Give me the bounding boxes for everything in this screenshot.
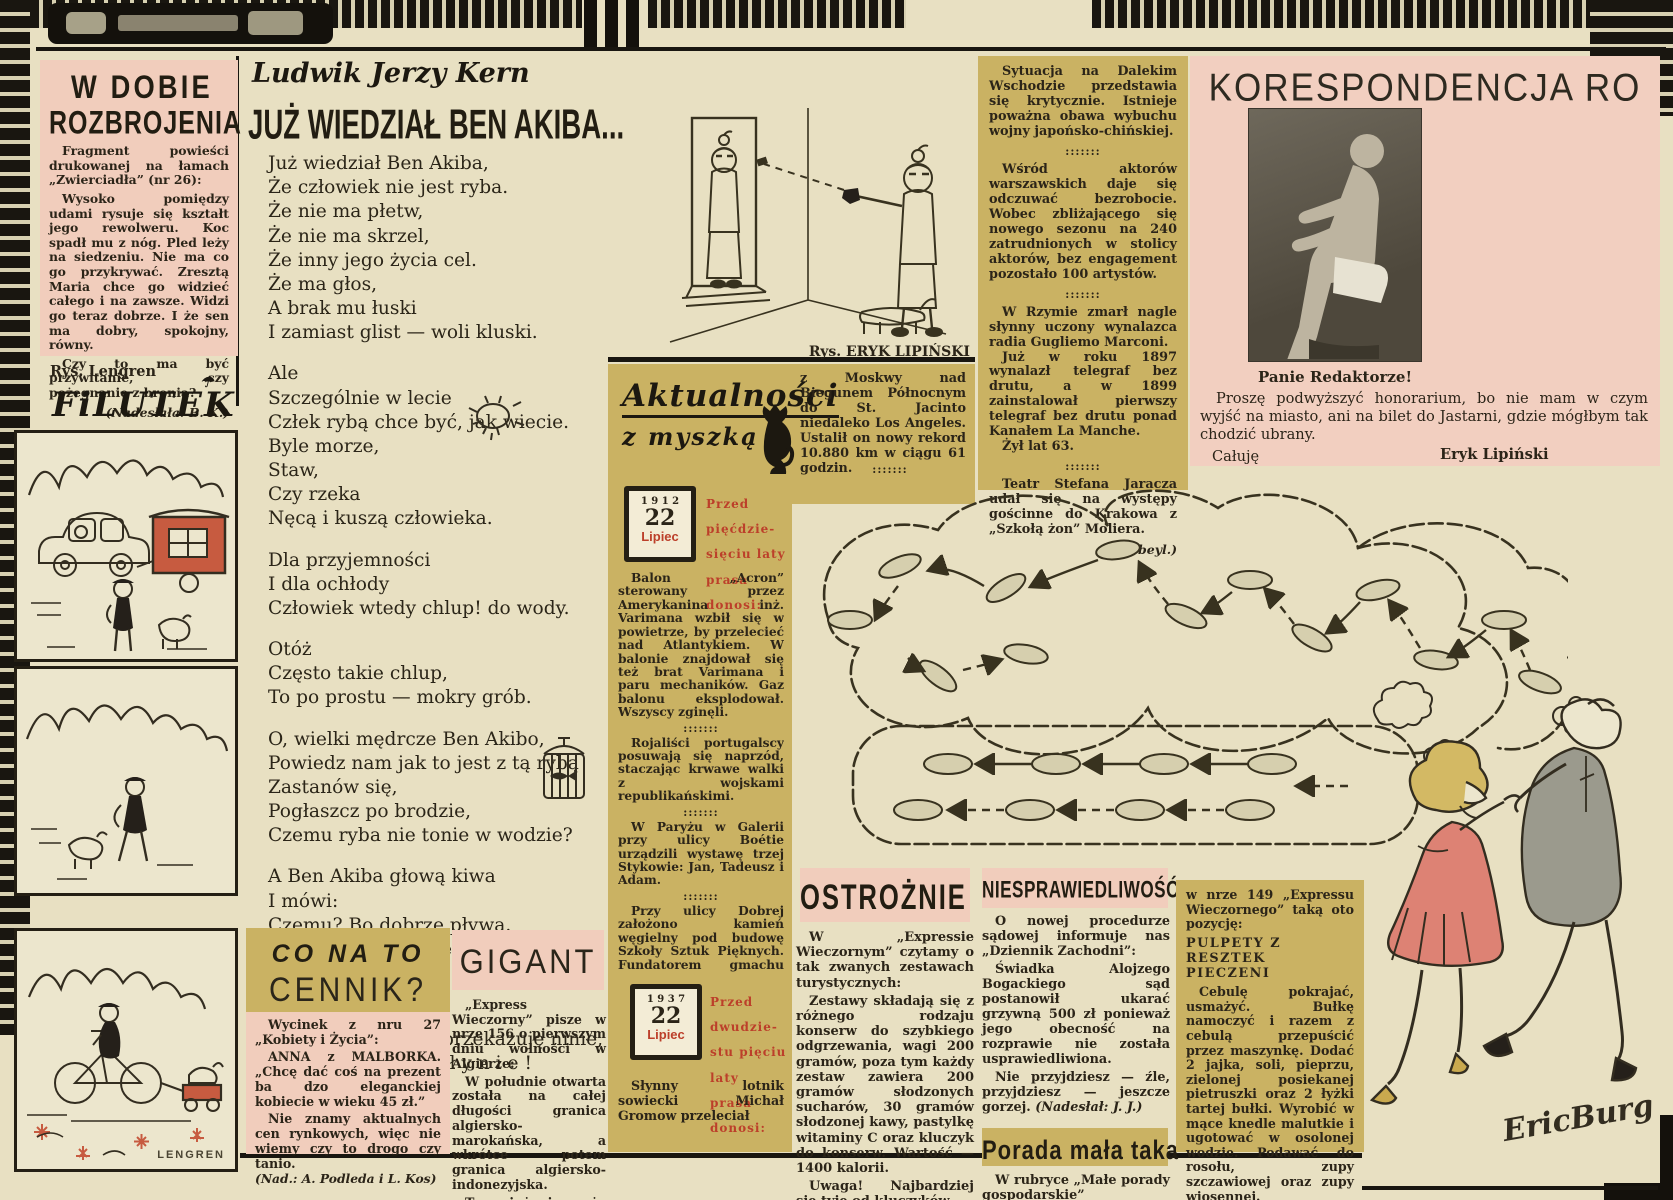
filutek-logo: FiLUTEK ☂ <box>52 385 237 429</box>
section-separator: ::::::: <box>989 145 1177 158</box>
poem-stanza: Już wiedział Ben Akiba, Że człowiek nie … <box>268 152 604 345</box>
news-item: Żył lat 63. <box>989 440 1177 455</box>
niesprawiedliwosc-header: NIESPRAWIEDLIWOŚĆ <box>982 868 1168 908</box>
article-paragraph: Fragment powieści drukowanej na łamach „… <box>49 144 229 188</box>
aktualnosci-item: Słynny lotnik sowiecki Michał Gromow prz… <box>618 1078 784 1123</box>
cennik-credit: (Nad.: A. Podleda i L. Kos) <box>255 1171 441 1186</box>
article-title-line2: ROZBROJENIA <box>49 105 242 143</box>
sun-doodle <box>455 390 527 446</box>
section-separator: ::::::: <box>618 890 784 903</box>
poem-stanza: Dla przyjemności I dla ochłody Człowiek … <box>268 549 604 622</box>
top-border-strip-2 <box>648 0 906 28</box>
cat-icon <box>746 388 802 474</box>
filutek-comic-panel-2 <box>14 666 238 896</box>
calendar-1937: 1 9 3 7 22 Lipiec <box>630 984 702 1060</box>
letter-closing: Całuję <box>1212 448 1259 465</box>
right-edge-strip <box>1660 1115 1673 1200</box>
pulpety-heading: PULPETY Z RESZTEK PIECZENI <box>1186 936 1354 981</box>
comic-signature: LENGREN <box>157 1149 225 1161</box>
comic-walk-illustration <box>17 669 235 893</box>
cennik-title-line1: CO NA TO <box>272 940 425 968</box>
letter-text: Proszę podwyższyć honorarium, bo nie mam… <box>1200 390 1648 443</box>
poem-stanza: Otóż Często takie chlup, To po prostu — … <box>268 638 604 711</box>
man-figure <box>1484 699 1636 1080</box>
cennik-title-line2: CENNIK? <box>269 971 427 1010</box>
newspaper-page: W DOBIE ROZBROJENIA Fragment powieści dr… <box>0 0 1673 1200</box>
mirror-with-reflection <box>682 118 770 306</box>
stamp-blotch <box>118 15 238 31</box>
calendar-1912: 1 9 1 2 22 Lipiec <box>624 486 696 562</box>
news-brief-column: Sytuacja na Dalekim Wschodzie przedstawi… <box>978 56 1188 490</box>
porada-header: Porada mała taka <box>982 1128 1168 1166</box>
aktualnosci-item: Balon „Acron” sterowany przez Amerykanin… <box>618 572 784 720</box>
calendar-day: 22 <box>629 507 691 529</box>
gigant-paragraph: W południe otwarta została na całej dług… <box>452 1075 606 1193</box>
poem-stanza: Ale Szczególnie w lecie Człek rybą chce … <box>268 362 604 531</box>
gigant-section: GIGANT „Express Wieczorny” pisze w nrze … <box>452 930 606 1154</box>
section-separator: ::::::: <box>618 722 784 735</box>
stamp-blotch <box>248 11 303 35</box>
section-separator: ::::::: <box>989 288 1177 301</box>
pulpety-body: Cebulę pokrajać, usmażyć. Bułkę namoczyć… <box>1186 985 1354 1200</box>
dancing-couple: EricBurg <box>1348 660 1660 1184</box>
comic-caravan <box>137 510 229 592</box>
birdcage-fish-doodle <box>534 732 594 812</box>
comic-filutek-figure <box>114 777 147 861</box>
korespondencja-section: KORESPONDENCJA RO Panie Redaktorze! Pros… <box>1190 56 1660 466</box>
ostroznie-header: OSTROŻNIE <box>800 868 970 922</box>
bottom-rule-right <box>1362 1186 1658 1190</box>
comic-bicycle-illustration <box>17 931 235 1169</box>
porada-paragraph: W rubryce „Małe porady gospodarskie” zna… <box>982 1174 1170 1200</box>
article-title-line1: W DOBIE <box>71 68 213 107</box>
comic-dog-wagon <box>161 1063 223 1111</box>
cloud-puffs <box>1374 682 1583 764</box>
pulpety-box: w nrze 149 „Expressu Wieczornego” taką o… <box>1176 880 1364 1152</box>
lengren-credit: Rys. Lengren <box>50 363 156 380</box>
ostroznie-paragraph: Zestawy składają się z różnego rodzaju k… <box>796 994 974 1176</box>
stamp-blotch <box>66 12 106 34</box>
aktualnosci-item: W Paryżu w Galerii przy ulicy Boétie urz… <box>618 821 784 888</box>
top-border-strip-3 <box>1092 0 1590 28</box>
aktualnosci-items-1912: Balon „Acron” sterowany przez Amerykanin… <box>618 572 784 972</box>
pulpety-intro: w nrze 149 „Expressu Wieczornego” taką o… <box>1186 888 1354 932</box>
filutek-comic-panel-1 <box>14 430 238 662</box>
korespondencja-title: KORESPONDENCJA RO <box>1209 66 1642 111</box>
letter-signature: Eryk Lipiński <box>1440 446 1549 463</box>
letter-photo <box>1248 108 1422 362</box>
niesprawiedliwosc-credit: (Nadesłał: J. J.) <box>1035 1100 1142 1115</box>
gigant-paragraph: Teraz już wiemy, że Algieria leży części… <box>452 1196 606 1200</box>
aktualnosci-continuation: z Moskwy nad Biegunem Północnym do St. J… <box>800 372 966 477</box>
filutek-comic-panel-3: LENGREN <box>14 928 238 1172</box>
bowler-hat-icon: ☂ <box>200 373 215 391</box>
poem-author: Ludwik Jerzy Kern <box>252 58 530 89</box>
cennik-paragraph: Wycinek z nru 27 „Kobiety i Życia”: <box>255 1018 441 1047</box>
news-item: W Rzymie zmarł nagle słynny uczony wynal… <box>989 306 1177 351</box>
ostroznie-section: OSTROŻNIE W „Expressie Wieczornym” czyta… <box>796 868 974 1152</box>
cennik-header: CO NA TO CENNIK? <box>246 928 450 1012</box>
ostroznie-paragraph: W „Expressie Wieczornym” czytamy o tak z… <box>796 930 974 991</box>
cennik-section: CO NA TO CENNIK? Wycinek z nru 27 „Kobie… <box>246 928 450 1154</box>
section-separator: ::::::: <box>618 806 784 819</box>
aktualnosci-item: Rojaliści portugalscy posuwają się naprz… <box>618 737 784 804</box>
comic-dog <box>159 615 191 649</box>
top-frame-rule <box>36 47 1666 51</box>
calendar-month: Lipiec <box>635 1027 697 1042</box>
disarmament-article: W DOBIE ROZBROJENIA Fragment powieści dr… <box>40 60 238 356</box>
news-item: Sytuacja na Dalekim Wschodzie przedstawi… <box>989 65 1177 140</box>
comic-car <box>39 513 149 576</box>
cennik-paragraph: ANNA z MALBORKA. „Chcę dać coś na prezen… <box>255 1050 441 1109</box>
calendar-month: Lipiec <box>629 529 691 544</box>
niesprawiedliwosc-paragraph: Świadka Alojzego Bogackiego sąd postanow… <box>982 963 1170 1068</box>
top-border-bars <box>584 0 644 47</box>
filutek-logo-text: FiLUTEK <box>52 385 236 425</box>
news-item: Już w roku 1897 wynalazł telegraf bez dr… <box>989 351 1177 441</box>
photo-caption: Panie Redaktorze! <box>1230 368 1440 386</box>
comic-cyclist <box>55 1003 161 1103</box>
mirror-cartoon: Rys. ERYK LIPIŃSKI <box>612 56 974 356</box>
gigant-header: GIGANT <box>452 930 604 990</box>
niesprawiedliwosc-paragraph: O nowej procedurze sądowej informuje nas… <box>982 915 1170 960</box>
news-item: Wśród aktorów warszawskich daje się odcz… <box>989 163 1177 283</box>
cartoon-credit: Rys. ERYK LIPIŃSKI <box>809 344 970 360</box>
ostroznie-paragraph: Uwaga! Najbardziej się tyje od kluczyków… <box>796 1179 974 1200</box>
article-paragraph: Wysoko pomiędzy udami rysuje się kształt… <box>49 192 229 353</box>
photo-figure-silhouette <box>1249 109 1419 359</box>
cennik-paragraph: Nie znamy aktualnych cen rynkowych, więc… <box>255 1112 441 1171</box>
comic-car-caravan-illustration <box>17 433 235 659</box>
comic-dog <box>69 832 107 869</box>
niesprawiedliwosc-section: NIESPRAWIEDLIWOŚĆ O nowej procedurze sąd… <box>982 868 1170 1152</box>
aktualnosci-item: Przy ulicy Dobrej założono kamień węgiel… <box>618 905 784 972</box>
poem-title: JUŻ WIEDZIAŁ BEN AKIBA... <box>248 102 608 136</box>
mirror-cartoon-illustration <box>612 56 974 356</box>
postal-stamp-mark <box>48 3 333 44</box>
comic-filutek-figure <box>107 579 134 651</box>
gigant-title: GIGANT <box>460 942 597 982</box>
calendar-day: 22 <box>635 1005 697 1027</box>
niesprawiedliwosc-paragraph: Nie przyjdziesz — źle, przyjdziesz — jes… <box>982 1071 1170 1116</box>
gigant-paragraph: „Express Wieczorny” pisze w nrze 156 o p… <box>452 998 606 1072</box>
cennik-body: Wycinek z nru 27 „Kobiety i Życia”: ANNA… <box>246 1012 450 1154</box>
